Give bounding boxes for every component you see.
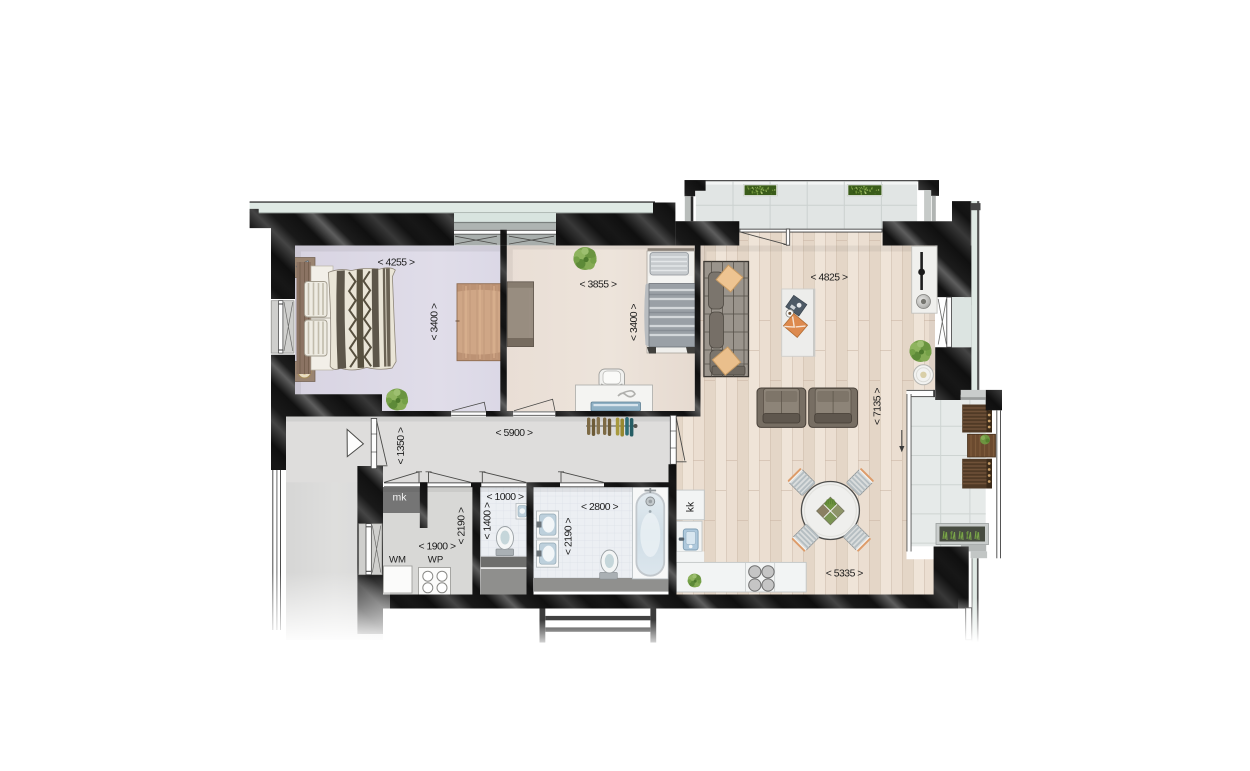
svg-text:< 2190 >: < 2190 > <box>564 518 575 555</box>
svg-text:< 3855 >: < 3855 > <box>579 280 616 291</box>
svg-text:< 4825 >: < 4825 > <box>810 273 847 284</box>
svg-text:< 5335 >: < 5335 > <box>826 569 863 580</box>
svg-text:< 5900 >: < 5900 > <box>495 428 532 439</box>
svg-text:< 1900 >: < 1900 > <box>418 542 455 553</box>
svg-text:< 2800 >: < 2800 > <box>581 502 618 513</box>
svg-text:< 2190 >: < 2190 > <box>457 507 468 544</box>
svg-text:< 3400 >: < 3400 > <box>629 304 640 341</box>
svg-text:WM: WM <box>389 555 406 566</box>
svg-text:< 1400 >: < 1400 > <box>483 502 494 539</box>
svg-text:mk: mk <box>393 492 408 504</box>
svg-text:< 3400 >: < 3400 > <box>430 303 441 340</box>
svg-text:< 1350 >: < 1350 > <box>396 427 407 464</box>
svg-text:< 7135 >: < 7135 > <box>873 388 884 425</box>
svg-text:kk: kk <box>685 501 697 512</box>
svg-text:< 1000 >: < 1000 > <box>486 492 523 503</box>
svg-text:WP: WP <box>428 555 443 566</box>
svg-text:< 4255 >: < 4255 > <box>377 258 414 269</box>
